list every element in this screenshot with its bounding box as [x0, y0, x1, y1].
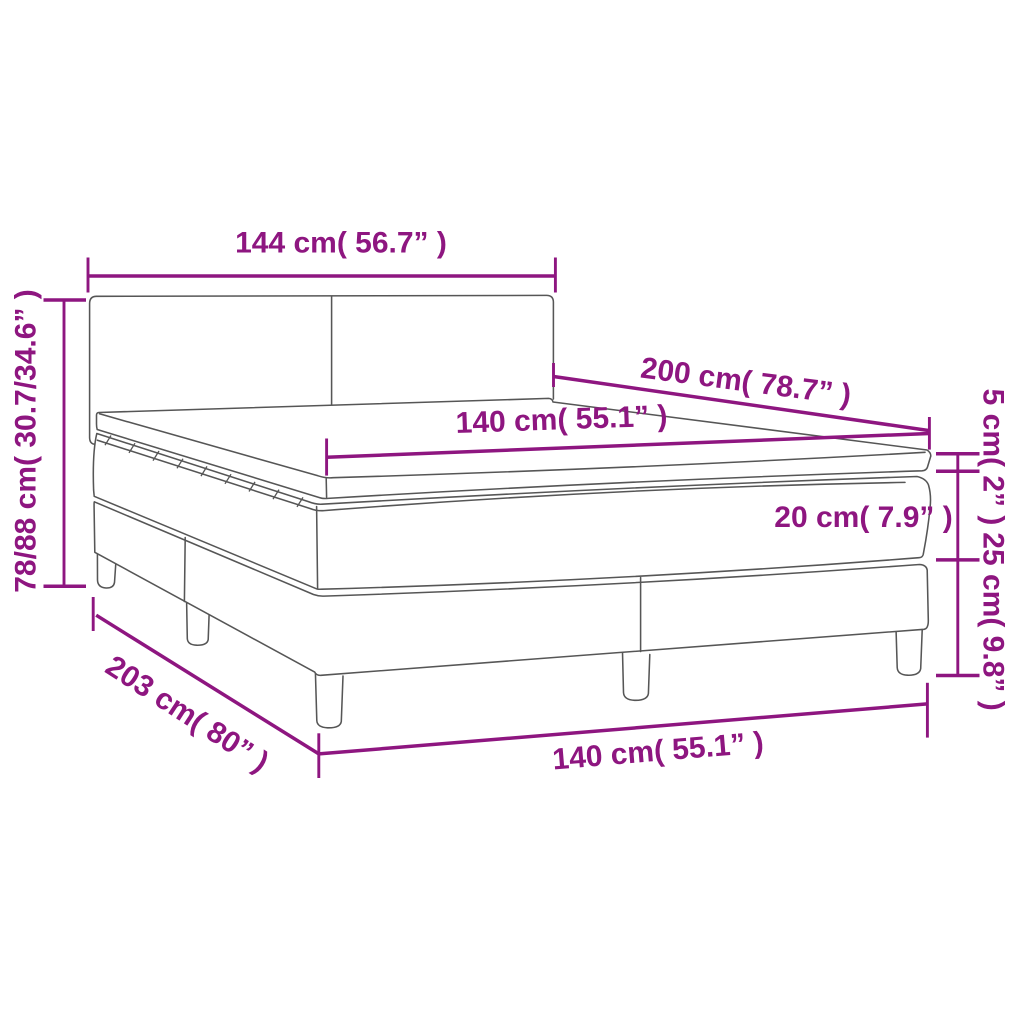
svg-text:144 cm( 56.7” ): 144 cm( 56.7” ) [235, 226, 447, 259]
svg-text:25 cm( 9.8” ): 25 cm( 9.8” ) [977, 532, 1010, 710]
svg-text:5 cm( 2” ): 5 cm( 2” ) [977, 389, 1010, 526]
svg-text:78/88 cm( 30.7/34.6” ): 78/88 cm( 30.7/34.6” ) [10, 289, 43, 593]
svg-text:20 cm( 7.9” ): 20 cm( 7.9” ) [774, 501, 952, 534]
